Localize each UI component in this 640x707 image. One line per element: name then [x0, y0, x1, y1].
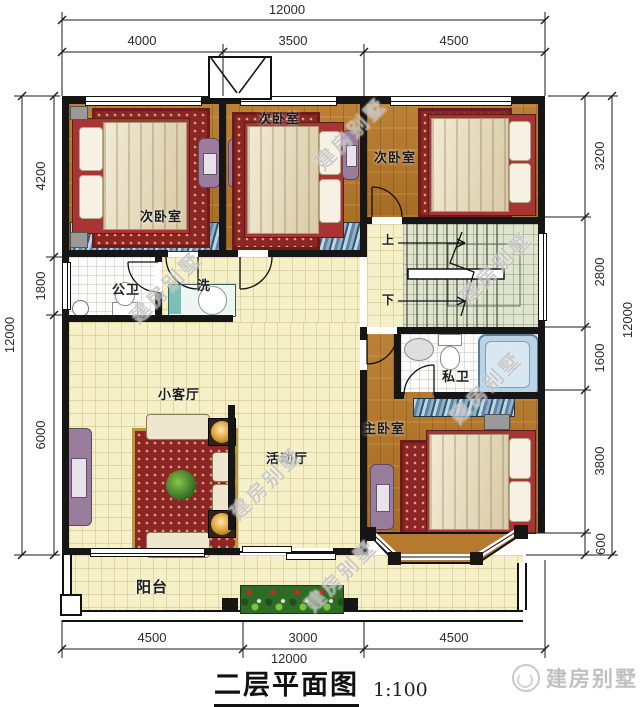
dim-top-total: 12000	[252, 2, 322, 16]
dim-right-segment-3: 1600	[592, 328, 606, 388]
room-label-activity-hall: 活动厅	[266, 448, 308, 467]
toilet-tank	[438, 334, 462, 346]
bed-pillow	[79, 127, 103, 171]
dim-bottom-segment-1: 4500	[117, 630, 187, 644]
bed-pillow	[319, 131, 341, 175]
wall	[434, 392, 538, 399]
stairs-up-label: 上	[382, 231, 395, 248]
floor-plan-canvas: 次卧室 次卧室 次卧室 公卫 洗 小客厅 活动厅 主卧室 私卫 阳台 上 下 1…	[0, 0, 640, 707]
window	[390, 96, 512, 106]
balcony-railing	[517, 563, 527, 610]
bed-pillow	[509, 121, 531, 161]
wall	[402, 217, 545, 224]
room-label-public-bathroom: 公卫	[112, 279, 140, 298]
entry-canopy	[208, 56, 272, 100]
dim-top-segment-3: 4500	[419, 33, 489, 47]
nightstand	[70, 106, 88, 120]
room-label-washstand: 洗	[197, 275, 211, 294]
window	[85, 96, 202, 106]
wall	[360, 217, 372, 224]
dim-top-segment-1: 4000	[107, 33, 177, 47]
wall	[62, 315, 233, 322]
dim-top-segment-2: 3500	[258, 33, 328, 47]
wall	[219, 96, 226, 257]
dim-bottom-segment-3: 4500	[419, 630, 489, 644]
wall	[360, 334, 367, 340]
room-label-private-bathroom: 私卫	[442, 366, 470, 385]
sliding-door-panel	[286, 553, 336, 560]
dim-left-segment-3: 6000	[33, 405, 47, 465]
wall	[360, 96, 367, 257]
bed	[428, 114, 536, 216]
nightstand	[484, 414, 510, 430]
flower-planter	[240, 585, 344, 614]
bathtub	[478, 334, 539, 397]
room-label-balcony: 阳台	[136, 576, 168, 597]
bed	[244, 122, 344, 238]
bathtub-inner	[485, 341, 530, 388]
bed-pillow	[509, 481, 531, 522]
wall	[394, 392, 404, 399]
dim-right-segment-5: 600	[593, 514, 607, 574]
dresser	[198, 138, 220, 188]
brand-logo: 建房别墅	[512, 663, 638, 693]
stairs-down-label: 下	[382, 291, 395, 308]
dim-left-segment-2: 1800	[33, 256, 47, 316]
pier	[342, 598, 358, 612]
wall	[155, 257, 162, 262]
dim-left-segment-1: 4200	[33, 146, 47, 206]
wall	[198, 250, 238, 257]
bed-duvet	[247, 126, 319, 234]
stairs-floor	[403, 224, 538, 327]
drawing-title-block: 二层平面图 1:100	[214, 663, 428, 707]
room-label-master-bedroom: 主卧室	[363, 418, 405, 437]
wall	[228, 405, 235, 530]
dim-right-segment-1: 3200	[592, 126, 606, 186]
wall	[360, 327, 367, 334]
bed-duvet	[429, 434, 509, 530]
dim-bottom-segment-2: 3000	[268, 630, 338, 644]
window	[62, 262, 71, 310]
window	[90, 548, 205, 557]
brand-logo-icon	[512, 664, 540, 692]
bed	[426, 430, 536, 534]
chaise	[370, 464, 394, 530]
wall	[397, 327, 538, 334]
room-label-small-living-room: 小客厅	[158, 384, 200, 403]
dim-right-segment-2: 2800	[592, 242, 606, 302]
sofa	[146, 414, 210, 440]
wall	[268, 250, 360, 257]
nightstand	[70, 232, 88, 248]
corner-post	[60, 594, 82, 616]
bed-pillow	[509, 163, 531, 203]
page-title: 二层平面图	[214, 663, 359, 707]
wall	[62, 250, 168, 257]
room-label-bedroom-top-middle: 次卧室	[258, 108, 300, 127]
brand-logo-text: 建房别墅	[546, 663, 638, 693]
bed-pillow	[509, 438, 531, 479]
room-label-bedroom-top-right: 次卧室	[374, 147, 416, 166]
drawing-scale: 1:100	[373, 679, 428, 707]
sink	[404, 338, 434, 361]
wall	[360, 370, 367, 555]
bed-pillow	[79, 175, 103, 219]
wall	[394, 334, 401, 392]
bed-pillow	[319, 179, 341, 223]
bed-duvet	[431, 118, 509, 212]
dresser	[342, 130, 359, 180]
wall	[62, 96, 69, 555]
plant	[166, 470, 196, 500]
dim-left-total: 12000	[2, 305, 16, 365]
dim-right-segment-4: 3800	[592, 431, 606, 491]
sliding-door-panel	[242, 546, 292, 553]
wash-counter-shelf	[169, 285, 181, 314]
dim-right-total: 12000	[620, 290, 634, 350]
pier	[222, 598, 238, 612]
window	[538, 233, 547, 321]
room-label-bedroom-top-left: 次卧室	[140, 206, 182, 225]
